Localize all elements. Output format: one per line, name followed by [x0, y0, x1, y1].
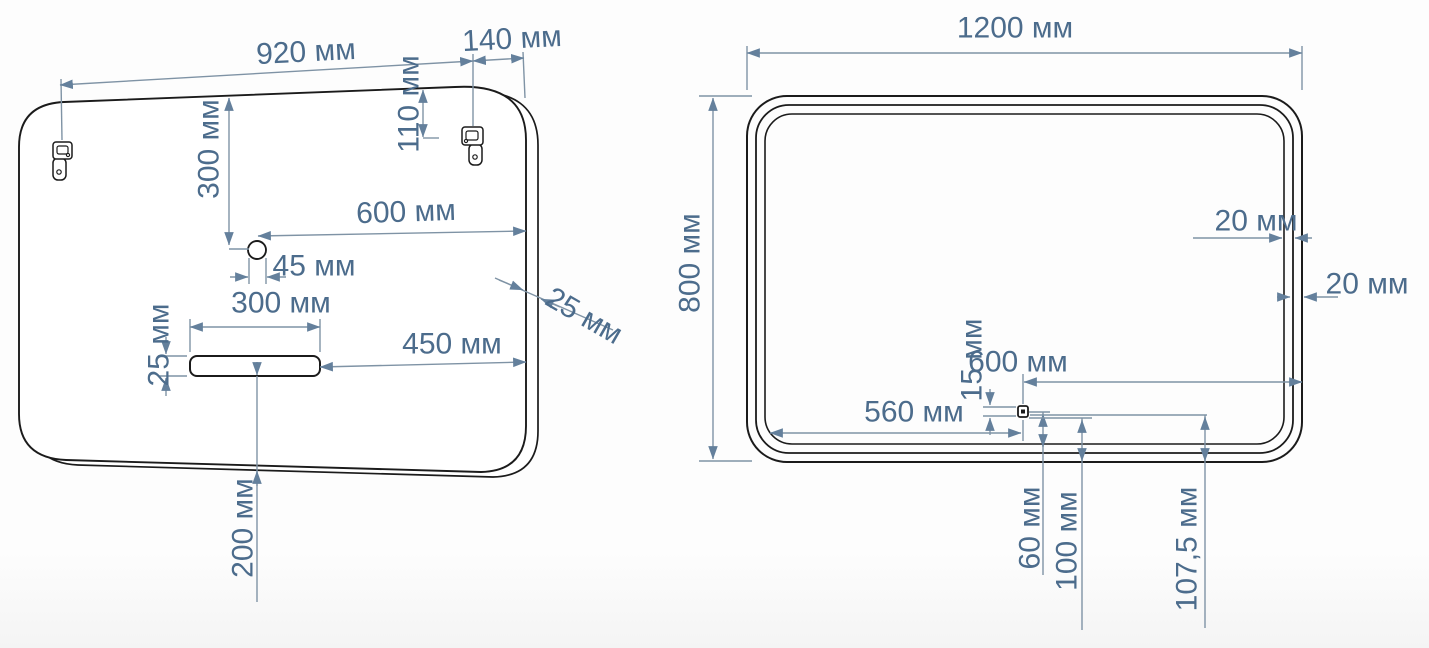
led-frame-inner-line	[765, 114, 1284, 444]
dim-hole-diameter: 45 мм	[273, 250, 356, 283]
dim-sensor-offset-2: 100 мм	[1051, 491, 1084, 591]
shelf-slot	[190, 356, 320, 376]
dim-mount-from-top: 110 мм	[393, 55, 426, 152]
back-view-drawing: 920 мм 140 мм 110 мм 300 мм 600 мм 45 мм…	[19, 20, 628, 602]
dim-mirror-thickness: 25 мм	[540, 281, 628, 351]
dim-sensor-offset-1: 60 мм	[1014, 487, 1047, 570]
dim-hole-to-edge: 600 мм	[356, 194, 457, 230]
dim-width: 1200 мм	[957, 12, 1073, 45]
led-frame-outer-line	[756, 105, 1293, 453]
dim-mount-to-edge: 140 мм	[461, 20, 562, 58]
touch-sensor	[1018, 406, 1028, 417]
dim-slot-from-bottom: 200 мм	[227, 478, 260, 578]
dim-sensor-offset-3: 107,5 мм	[1171, 487, 1204, 612]
dim-hole-from-top: 300 мм	[193, 99, 226, 199]
dim-frame-gap-2: 20 мм	[1326, 268, 1409, 301]
dim-sensor-to-right-edge: 600 мм	[968, 346, 1068, 379]
scan-shadow-band	[0, 552, 1429, 648]
technical-drawing: 920 мм 140 мм 110 мм 300 мм 600 мм 45 мм…	[0, 0, 1429, 648]
dim-mount-span: 920 мм	[255, 33, 356, 71]
cable-hole	[248, 241, 266, 259]
dim-slot-height: 25 мм	[143, 304, 176, 387]
dim-height: 800 мм	[674, 213, 707, 313]
dim-slot-width: 300 мм	[231, 287, 331, 320]
dim-sensor-to-left-edge: 560 мм	[864, 396, 964, 429]
blueprint-canvas: 920 мм 140 мм 110 мм 300 мм 600 мм 45 мм…	[0, 0, 1429, 648]
front-view-drawing: 1200 мм 800 мм 20 мм 20 мм 15 мм 600 мм …	[674, 12, 1409, 631]
dim-frame-gap-1: 20 мм	[1215, 205, 1298, 238]
dim-slot-to-edge: 450 мм	[402, 328, 502, 361]
